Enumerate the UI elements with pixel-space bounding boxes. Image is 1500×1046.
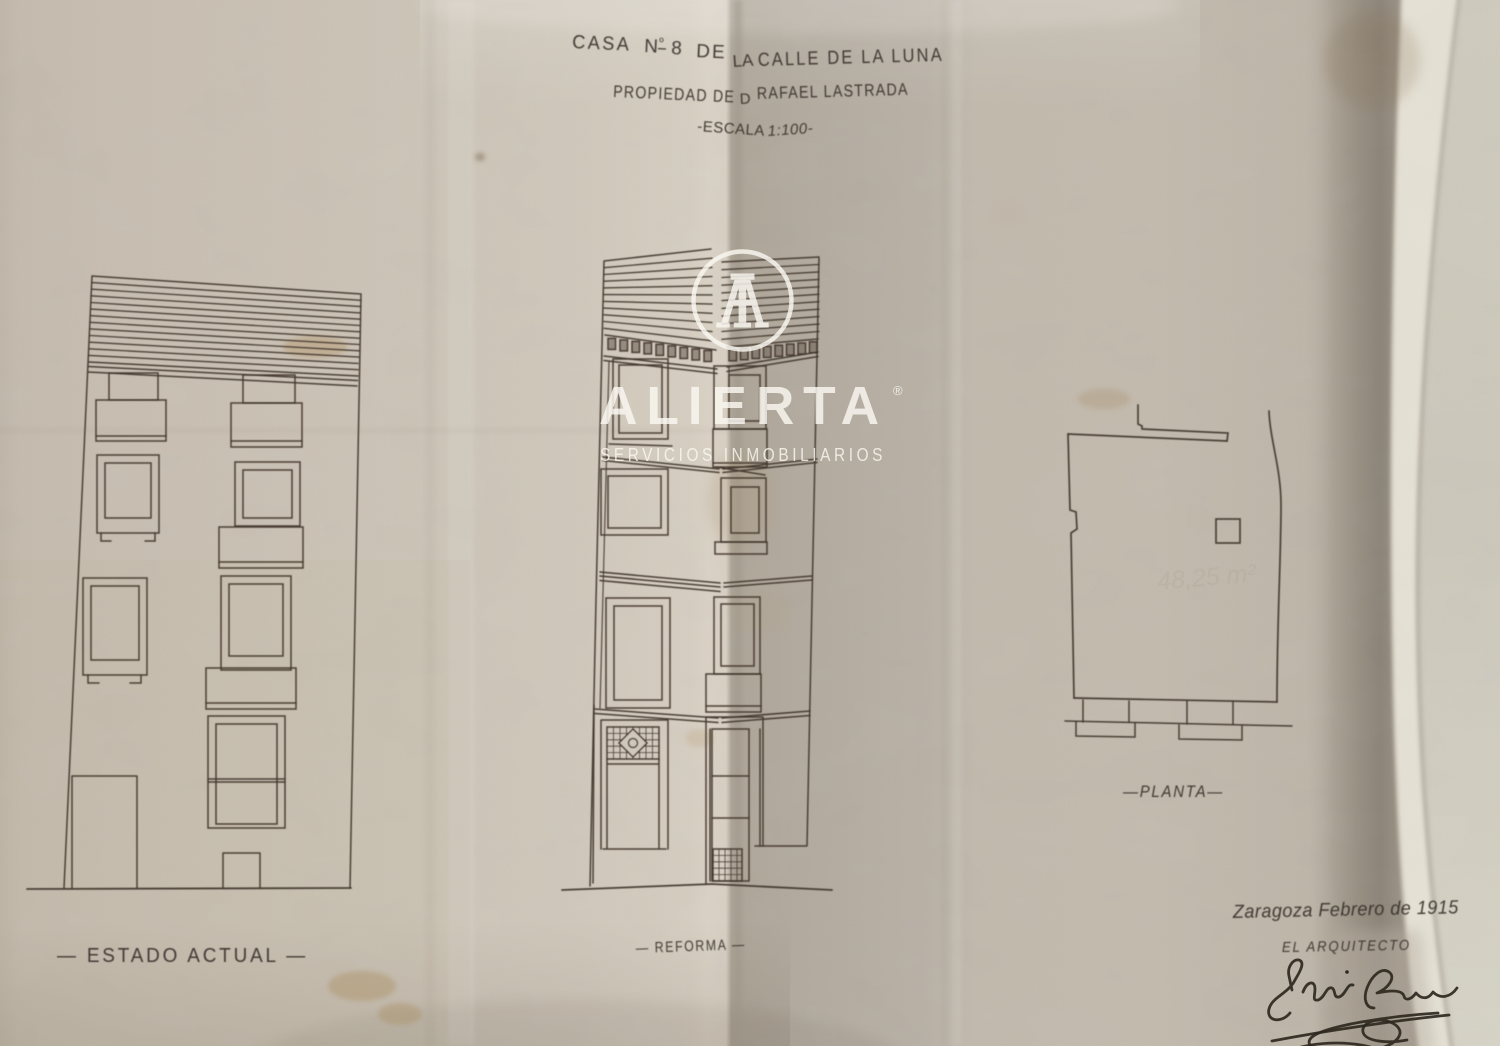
svg-text:ALIERTA: ALIERTA xyxy=(599,376,888,436)
svg-text:SERVICIOS INMOBILIARIOS: SERVICIOS INMOBILIARIOS xyxy=(600,445,886,465)
svg-text:®: ® xyxy=(893,383,903,398)
svg-text:CASA: CASA xyxy=(572,32,632,56)
svg-text:DE: DE xyxy=(696,41,727,63)
svg-text:— ESTADO ACTUAL —: — ESTADO ACTUAL — xyxy=(57,945,308,967)
svg-text:1:100-: 1:100- xyxy=(767,120,814,140)
svg-text:N: N xyxy=(644,36,660,58)
svg-text:LA: LA xyxy=(732,51,755,71)
svg-text:EL ARQUITECTO: EL ARQUITECTO xyxy=(1282,938,1411,956)
svg-text:—PLANTA—: —PLANTA— xyxy=(1122,782,1224,801)
svg-text:D: D xyxy=(739,90,751,108)
svg-text:8: 8 xyxy=(671,38,683,59)
